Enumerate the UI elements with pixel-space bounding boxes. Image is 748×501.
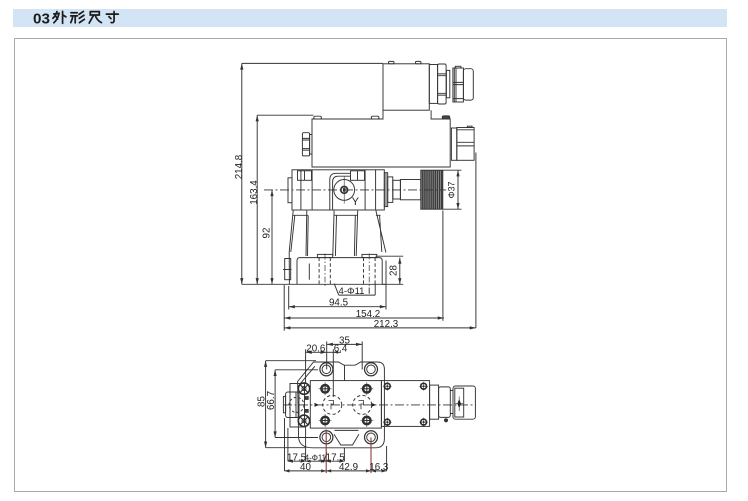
svg-text:42.9: 42.9	[339, 462, 358, 473]
svg-text:92: 92	[261, 228, 272, 239]
svg-text:03: 03	[33, 11, 50, 28]
svg-text:Φ37: Φ37	[447, 181, 457, 198]
svg-text:212.3: 212.3	[374, 319, 399, 330]
svg-text:6.4: 6.4	[334, 343, 348, 354]
svg-text:4-Φ11: 4-Φ11	[339, 286, 365, 297]
svg-text:16.3: 16.3	[369, 462, 389, 473]
svg-text:20.6: 20.6	[306, 343, 326, 354]
svg-text:163.4: 163.4	[249, 180, 260, 205]
svg-text:28: 28	[389, 265, 400, 276]
svg-text:66.7: 66.7	[266, 391, 277, 410]
svg-text:94.5: 94.5	[329, 298, 349, 309]
svg-text:40: 40	[300, 462, 311, 473]
svg-text:Y: Y	[352, 196, 359, 208]
svg-text:214.8: 214.8	[234, 154, 245, 179]
